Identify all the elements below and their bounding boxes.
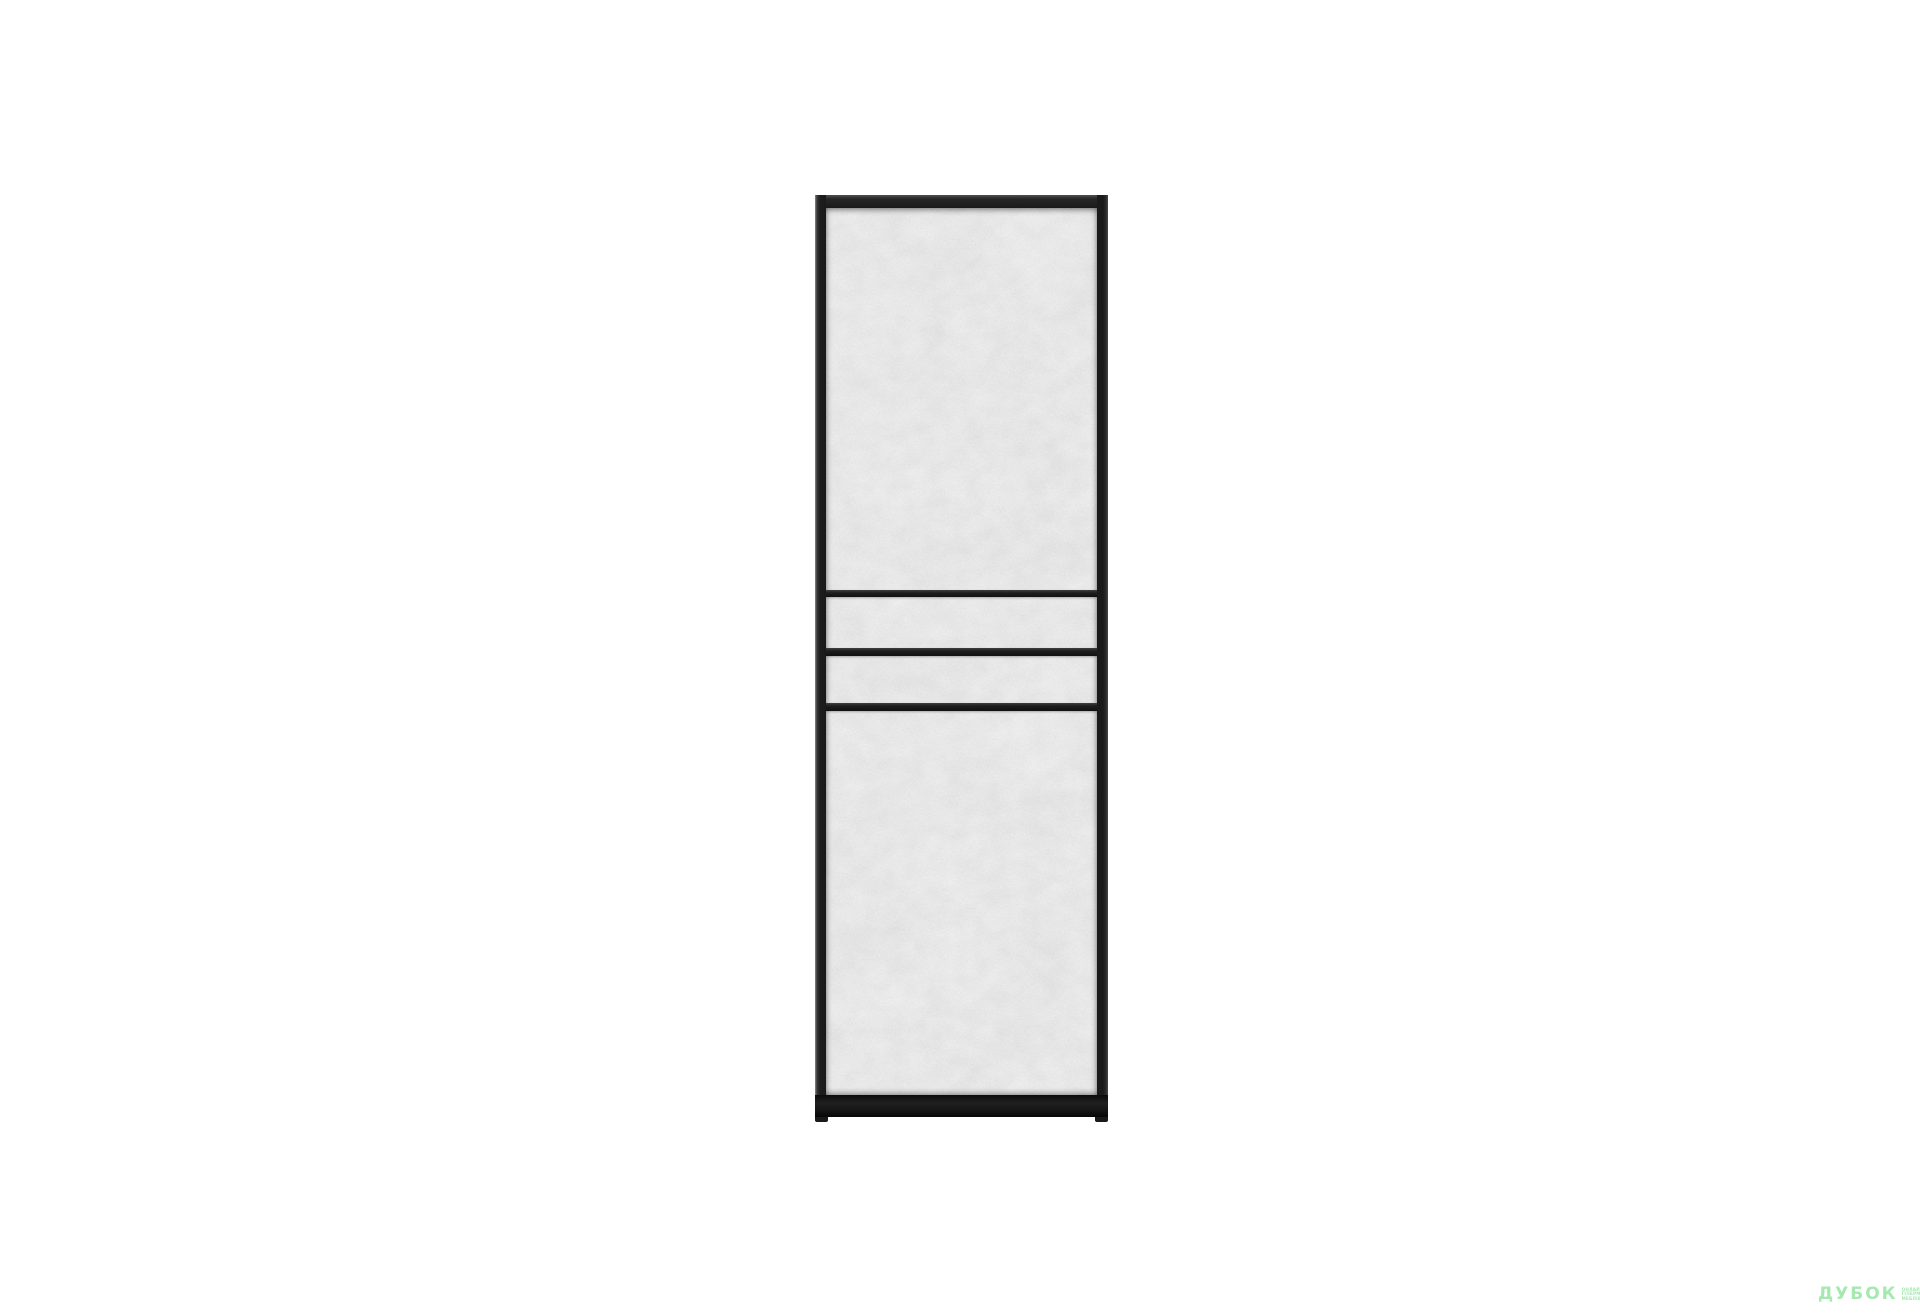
cabinet-leg-right bbox=[1095, 1117, 1108, 1122]
cabinet-image bbox=[815, 195, 1108, 1117]
cabinet-top-rail bbox=[815, 195, 1108, 208]
cabinet-plinth bbox=[815, 1095, 1108, 1117]
watermark-logo: ДУБОК bbox=[1818, 1286, 1898, 1303]
divider-stripe-3 bbox=[826, 703, 1097, 711]
cabinet-leg-left bbox=[815, 1117, 828, 1122]
watermark: ДУБОК ОНЛАЙН ГІПЕРМАРКЕТ МЕБЛІВ bbox=[1818, 1286, 1920, 1303]
cabinet-left-stile bbox=[815, 195, 826, 1117]
divider-stripe-1 bbox=[826, 590, 1097, 597]
watermark-tagline: ОНЛАЙН ГІПЕРМАРКЕТ МЕБЛІВ bbox=[1902, 1288, 1920, 1302]
divider-stripe-2 bbox=[826, 648, 1097, 656]
cabinet-right-stile bbox=[1097, 195, 1108, 1117]
watermark-tagline-line-3: МЕБЛІВ bbox=[1902, 1297, 1920, 1302]
product-photo-canvas: ДУБОК ОНЛАЙН ГІПЕРМАРКЕТ МЕБЛІВ bbox=[0, 0, 1920, 1314]
